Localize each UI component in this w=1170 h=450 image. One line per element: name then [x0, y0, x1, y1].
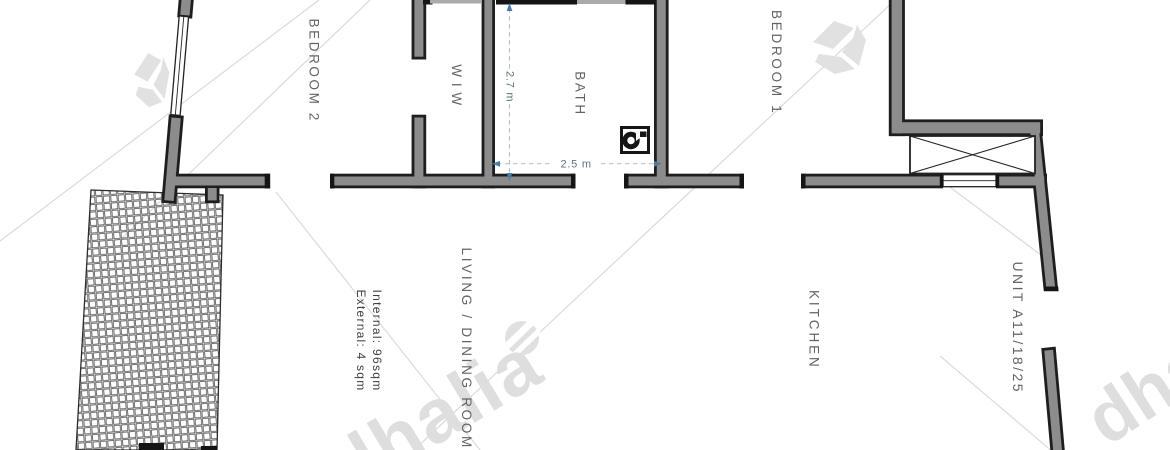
svg-text:Internal: 96sqm: Internal: 96sqm	[370, 290, 384, 391]
svg-text:External: 4 sqm: External: 4 sqm	[354, 290, 368, 391]
svg-text:LIVING / DINING ROOM: LIVING / DINING ROOM	[459, 248, 474, 449]
svg-text:KITCHEN: KITCHEN	[806, 290, 821, 368]
svg-text:BATH: BATH	[572, 71, 587, 115]
svg-text:UNIT A11/18/25: UNIT A11/18/25	[1010, 262, 1026, 393]
svg-text:2.7 m: 2.7 m	[504, 71, 516, 102]
svg-text:BEDROOM 2: BEDROOM 2	[306, 19, 321, 122]
svg-text:BEDROOM 1: BEDROOM 1	[769, 10, 784, 114]
svg-text:WIW: WIW	[449, 64, 464, 106]
svg-text:2.5 m: 2.5 m	[561, 159, 592, 171]
